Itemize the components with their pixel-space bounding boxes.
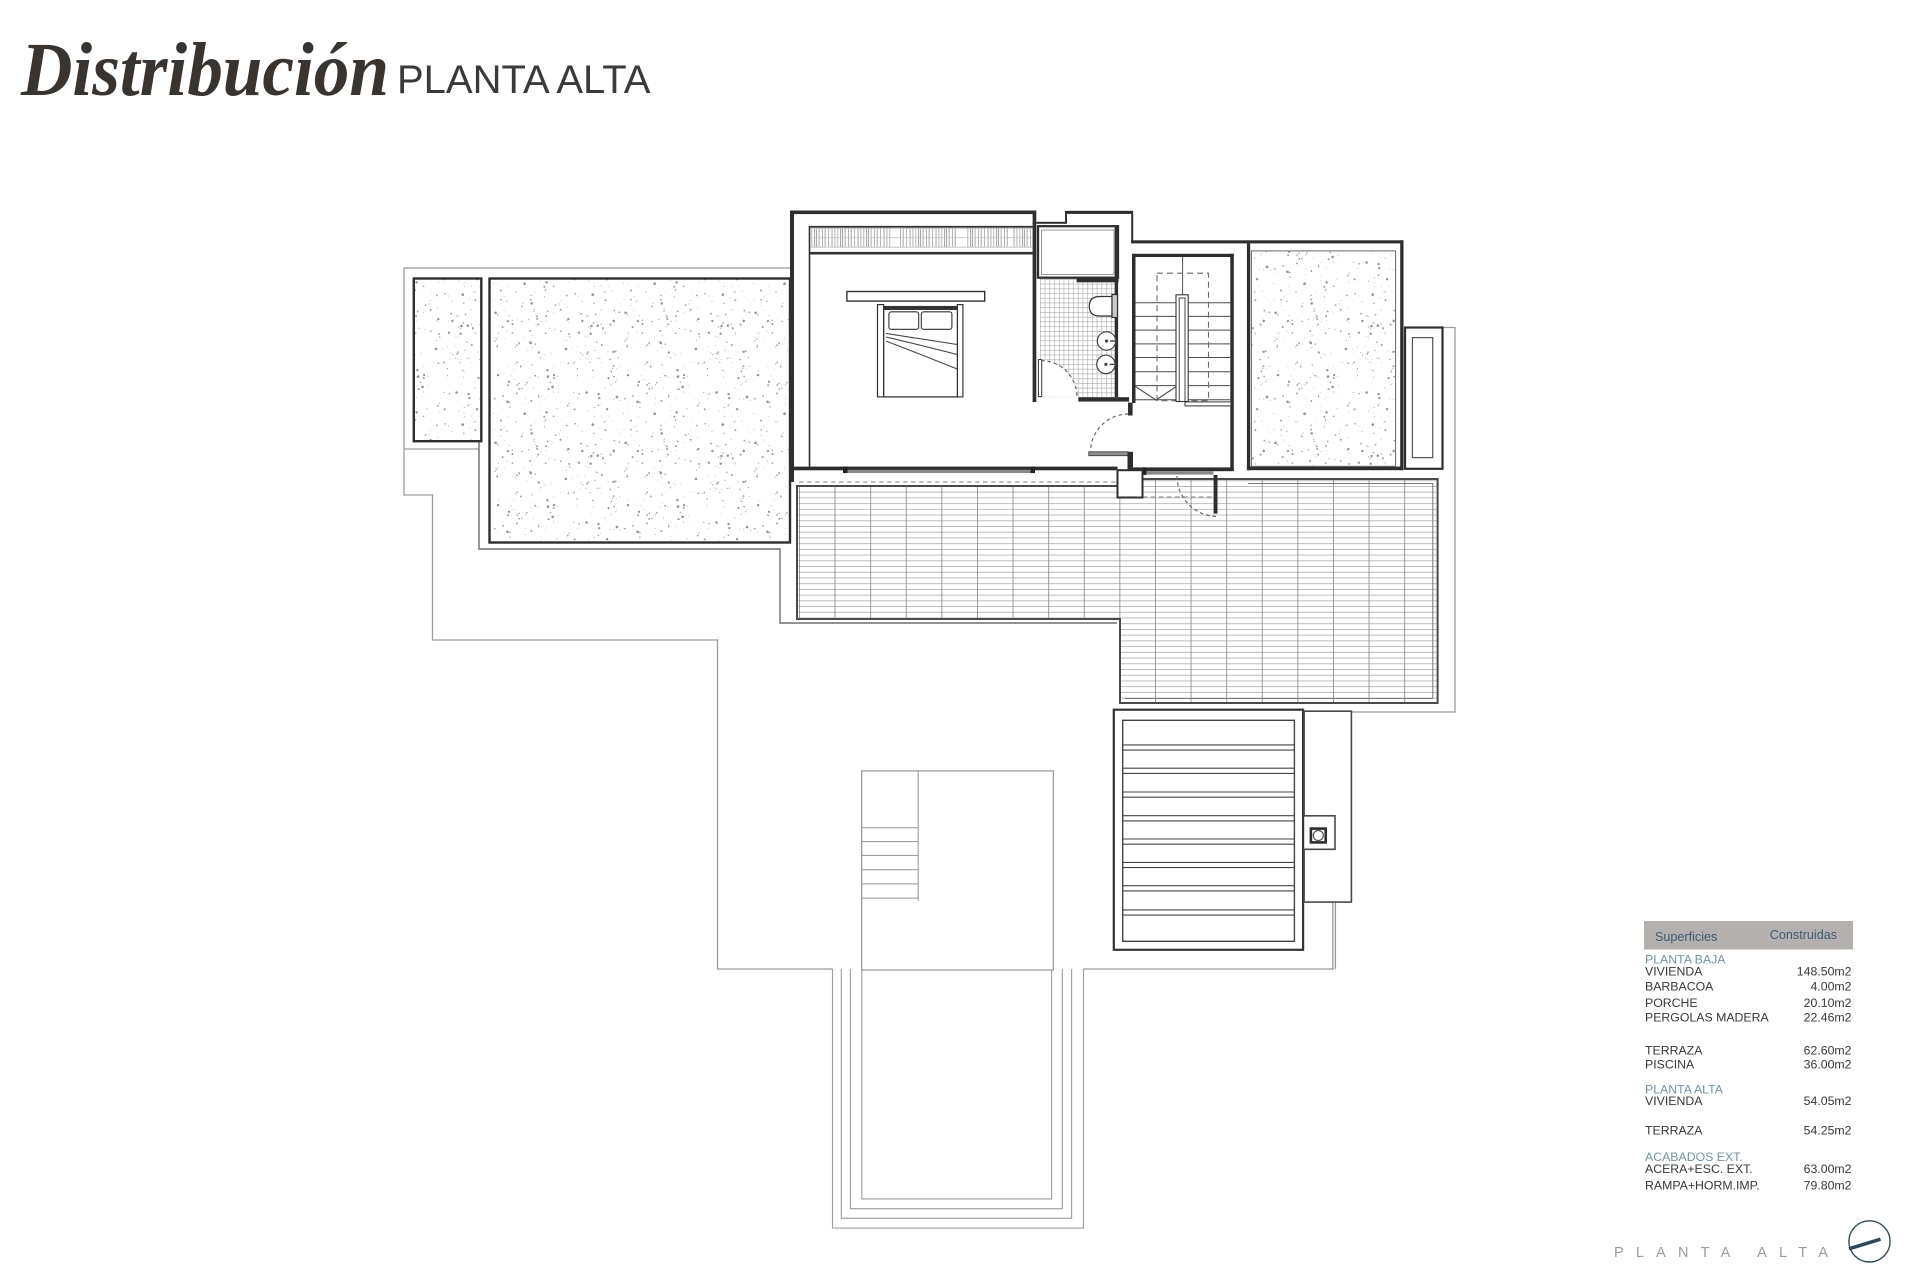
svg-text:TERRAZA: TERRAZA xyxy=(1645,1043,1703,1057)
svg-text:RAMPA+HORM.IMP.: RAMPA+HORM.IMP. xyxy=(1645,1178,1760,1192)
svg-text:20.10m2: 20.10m2 xyxy=(1804,996,1852,1010)
svg-text:PISCINA: PISCINA xyxy=(1645,1058,1695,1072)
svg-text:62.60m2: 62.60m2 xyxy=(1804,1043,1852,1057)
svg-text:VIVIENDA: VIVIENDA xyxy=(1645,965,1703,979)
svg-text:TERRAZA: TERRAZA xyxy=(1645,1124,1703,1138)
svg-text:Superficies: Superficies xyxy=(1655,930,1717,944)
svg-text:Distribución: Distribución xyxy=(20,28,389,112)
svg-text:PERGOLAS MADERA: PERGOLAS MADERA xyxy=(1645,1011,1769,1025)
svg-text:36.00m2: 36.00m2 xyxy=(1804,1058,1852,1072)
svg-text:VIVIENDA: VIVIENDA xyxy=(1645,1094,1703,1108)
svg-text:Construidas: Construidas xyxy=(1770,928,1837,942)
svg-text:ACERA+ESC. EXT.: ACERA+ESC. EXT. xyxy=(1645,1162,1753,1176)
svg-text:79.80m2: 79.80m2 xyxy=(1804,1178,1852,1192)
svg-text:22.46m2: 22.46m2 xyxy=(1804,1011,1852,1025)
svg-text:4.00m2: 4.00m2 xyxy=(1810,980,1851,994)
svg-text:PLANTA ALTA: PLANTA ALTA xyxy=(1614,1245,1840,1261)
svg-text:54.25m2: 54.25m2 xyxy=(1804,1124,1852,1138)
svg-text:BARBACOA: BARBACOA xyxy=(1645,980,1714,994)
svg-text:PLANTA ALTA: PLANTA ALTA xyxy=(397,58,651,102)
svg-text:148.50m2: 148.50m2 xyxy=(1797,965,1852,979)
svg-text:63.00m2: 63.00m2 xyxy=(1804,1162,1852,1176)
svg-text:54.05m2: 54.05m2 xyxy=(1804,1094,1852,1108)
svg-text:PORCHE: PORCHE xyxy=(1645,996,1698,1010)
